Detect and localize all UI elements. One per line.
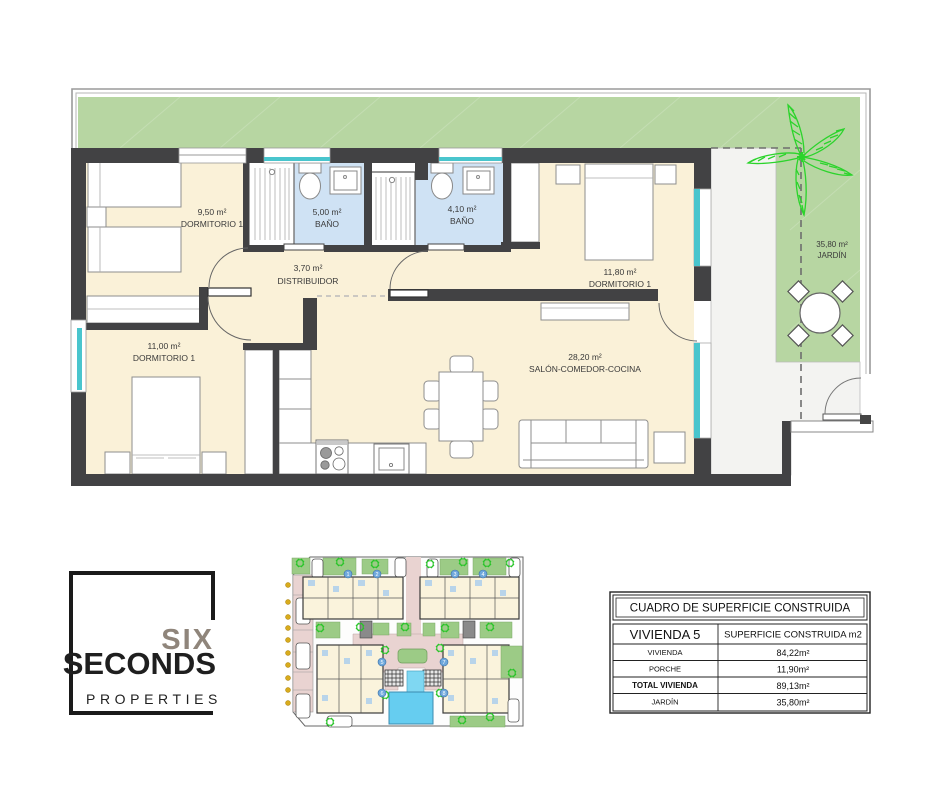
svg-text:JARDÍN: JARDÍN [651,698,678,707]
svg-text:SECONDS: SECONDS [63,646,216,681]
svg-text:JARDÍN: JARDÍN [818,251,847,260]
svg-text:9,50 m²: 9,50 m² [198,207,227,217]
svg-text:4: 4 [481,572,484,578]
svg-text:SALÓN-COMEDOR-COCINA: SALÓN-COMEDOR-COCINA [529,364,641,374]
svg-text:4,10 m²: 4,10 m² [448,204,477,214]
svg-text:TOTAL VIVIENDA: TOTAL VIVIENDA [632,681,698,690]
svg-text:11,90m²: 11,90m² [777,665,809,675]
svg-text:BAÑO: BAÑO [315,219,339,229]
svg-text:VIVIENDA 5: VIVIENDA 5 [630,627,701,642]
svg-text:BAÑO: BAÑO [450,216,474,226]
svg-text:35,80 m²: 35,80 m² [816,240,848,249]
svg-text:3: 3 [453,572,456,578]
svg-text:3,70 m²: 3,70 m² [294,263,323,273]
svg-text:DORMITORIO 1: DORMITORIO 1 [181,219,243,229]
svg-text:2: 2 [375,572,378,578]
svg-text:11,00 m²: 11,00 m² [148,341,181,351]
svg-text:7: 7 [442,660,445,666]
svg-text:35,80m²: 35,80m² [776,698,809,708]
svg-text:28,20 m²: 28,20 m² [568,352,602,362]
svg-text:PORCHE: PORCHE [649,665,681,674]
svg-text:1: 1 [346,572,349,578]
svg-text:5,00 m²: 5,00 m² [313,207,342,217]
svg-text:89,13m²: 89,13m² [776,681,809,691]
svg-text:11,80 m²: 11,80 m² [604,267,637,277]
svg-text:84,22m²: 84,22m² [776,648,809,658]
svg-text:5: 5 [380,660,383,666]
svg-text:DORMITORIO 1: DORMITORIO 1 [589,279,651,289]
svg-text:SUPERFICIE CONSTRUIDA m2: SUPERFICIE CONSTRUIDA m2 [724,630,862,641]
svg-text:VIVIENDA: VIVIENDA [647,648,682,657]
svg-text:PROPERTIES: PROPERTIES [86,691,222,707]
svg-text:DISTRIBUIDOR: DISTRIBUIDOR [278,276,339,286]
svg-text:CUADRO DE SUPERFICIE CONSTRUID: CUADRO DE SUPERFICIE CONSTRUIDA [630,603,851,615]
svg-text:DORMITORIO 1: DORMITORIO 1 [133,353,195,363]
svg-text:8: 8 [442,691,445,697]
svg-text:6: 6 [380,691,383,697]
